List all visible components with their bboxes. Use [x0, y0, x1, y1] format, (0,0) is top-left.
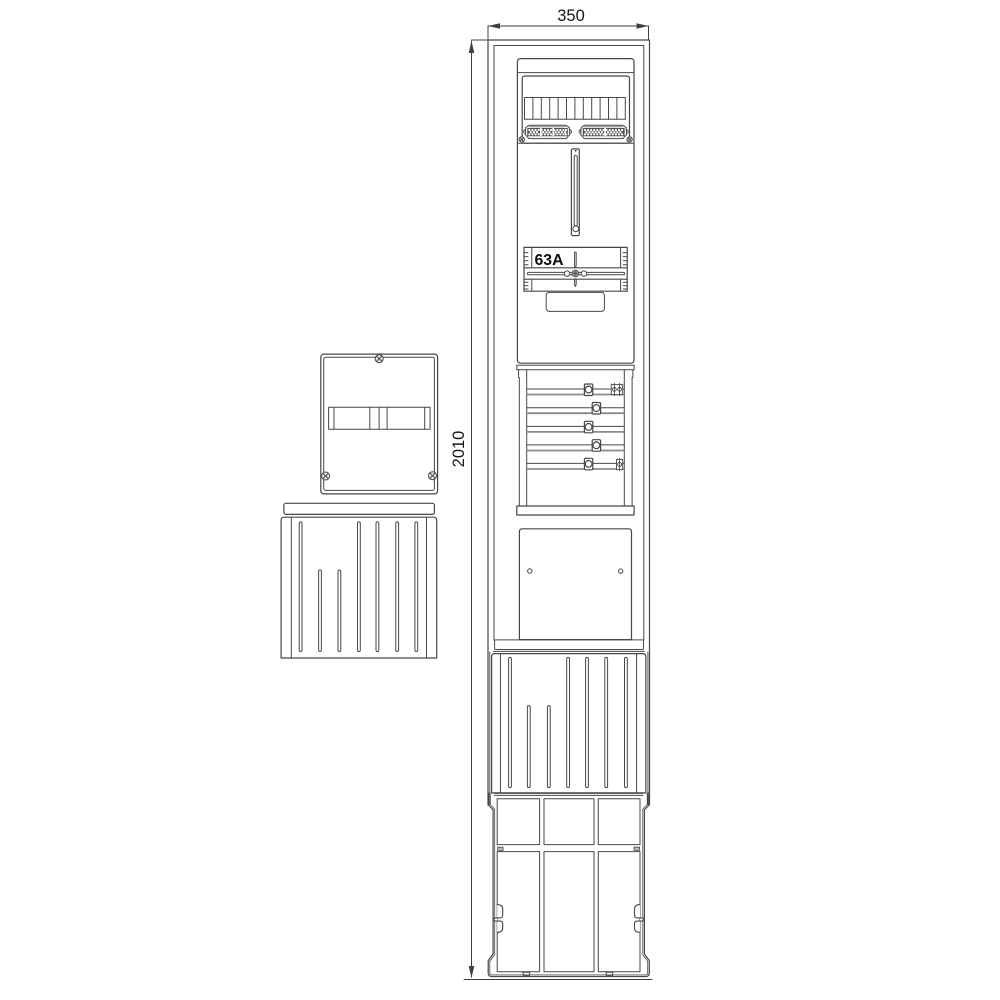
svg-text:350: 350 [557, 7, 585, 25]
svg-text:63A: 63A [535, 252, 564, 269]
svg-text:2010: 2010 [450, 431, 468, 468]
